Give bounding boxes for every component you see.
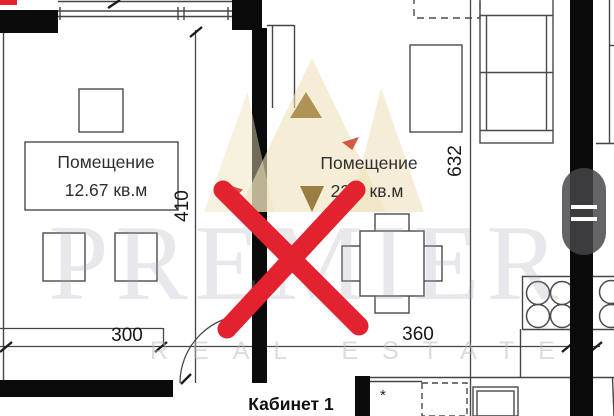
grip-bar xyxy=(571,217,597,221)
red-corner-mark xyxy=(0,0,17,5)
grip-bar xyxy=(571,205,597,209)
floor-plan-screenshot: PREMIER REAL ESTATE Помещение 12.67 кв.м… xyxy=(0,0,614,416)
red-cross-mark xyxy=(0,0,614,416)
grip-handle-icon[interactable] xyxy=(562,168,606,255)
